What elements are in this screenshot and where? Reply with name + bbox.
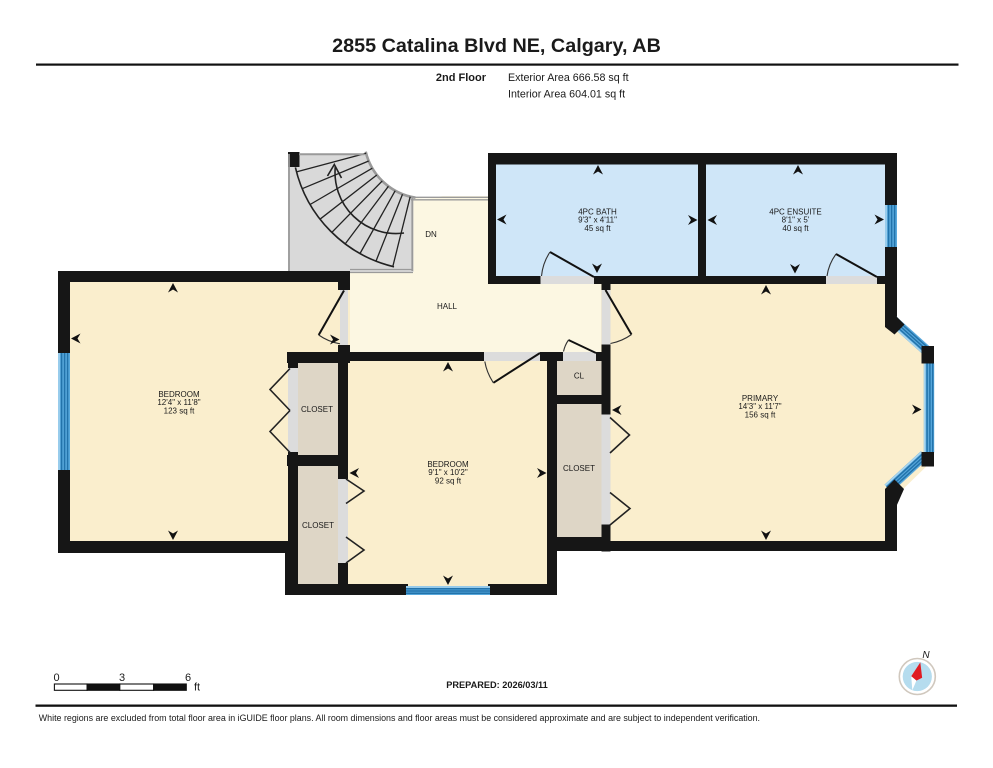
svg-text:0: 0: [53, 672, 59, 684]
svg-text:92 sq ft: 92 sq ft: [435, 476, 462, 485]
svg-text:Interior Area 604.01 sq ft: Interior Area 604.01 sq ft: [508, 89, 625, 101]
svg-text:3: 3: [119, 672, 125, 684]
svg-text:ft: ft: [194, 682, 200, 694]
svg-text:2nd Floor: 2nd Floor: [436, 72, 487, 84]
svg-text:White regions are excluded fro: White regions are excluded from total fl…: [39, 713, 760, 723]
svg-text:CLOSET: CLOSET: [563, 464, 595, 473]
svg-text:HALL: HALL: [437, 302, 458, 311]
svg-text:156 sq ft: 156 sq ft: [745, 410, 776, 419]
svg-text:DN: DN: [425, 230, 437, 239]
svg-text:Exterior Area 666.58 sq ft: Exterior Area 666.58 sq ft: [508, 72, 629, 84]
svg-text:PREPARED: 2026/03/11: PREPARED: 2026/03/11: [446, 680, 547, 690]
svg-text:CL: CL: [574, 372, 585, 381]
svg-text:123 sq ft: 123 sq ft: [164, 406, 195, 415]
svg-text:2855 Catalina Blvd NE, Calgary: 2855 Catalina Blvd NE, Calgary, AB: [332, 35, 661, 57]
svg-text:CLOSET: CLOSET: [301, 405, 333, 414]
svg-text:45 sq ft: 45 sq ft: [584, 224, 611, 233]
svg-text:6: 6: [185, 672, 191, 684]
svg-text:40 sq ft: 40 sq ft: [782, 224, 809, 233]
svg-text:N: N: [922, 650, 930, 661]
svg-text:CLOSET: CLOSET: [302, 521, 334, 530]
